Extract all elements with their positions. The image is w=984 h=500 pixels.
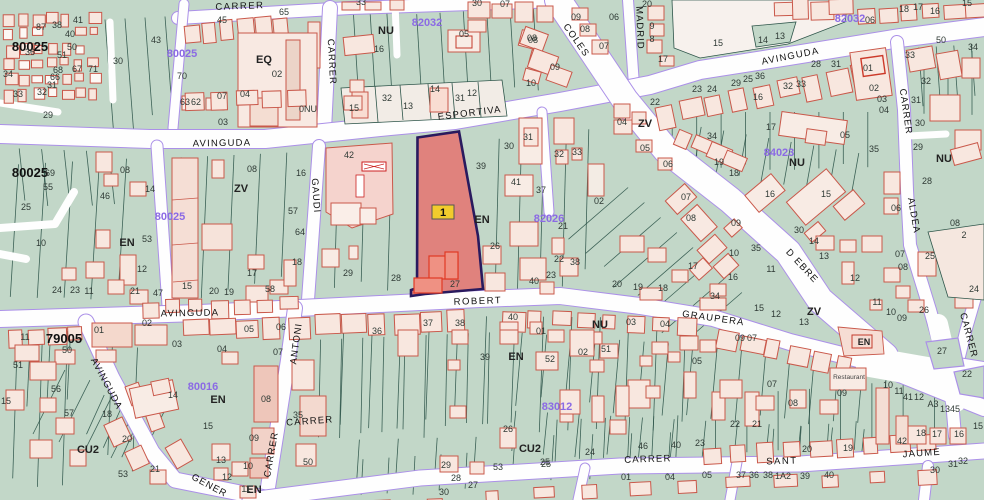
svg-text:1A2: 1A2 <box>775 471 791 481</box>
svg-text:32: 32 <box>554 149 564 159</box>
svg-text:27: 27 <box>450 279 460 289</box>
svg-text:80025: 80025 <box>167 48 198 60</box>
svg-text:19: 19 <box>224 287 234 297</box>
svg-text:21: 21 <box>558 221 568 231</box>
svg-text:62: 62 <box>191 97 201 107</box>
svg-text:AVINGUDA: AVINGUDA <box>193 137 252 149</box>
svg-text:15: 15 <box>754 303 764 313</box>
svg-text:05: 05 <box>459 29 469 39</box>
svg-text:41: 41 <box>511 177 521 187</box>
svg-text:20: 20 <box>122 434 132 444</box>
svg-text:67: 67 <box>72 64 82 74</box>
svg-text:31: 31 <box>948 459 958 469</box>
svg-text:69: 69 <box>45 168 55 178</box>
svg-text:1: 1 <box>440 207 446 219</box>
svg-text:31: 31 <box>455 93 465 103</box>
svg-text:04: 04 <box>879 105 889 115</box>
svg-text:53: 53 <box>118 469 128 479</box>
svg-text:21: 21 <box>150 464 160 474</box>
svg-text:52: 52 <box>545 354 555 364</box>
svg-text:39: 39 <box>480 352 490 362</box>
svg-text:03: 03 <box>877 94 887 104</box>
svg-text:10: 10 <box>243 461 253 471</box>
svg-text:02: 02 <box>578 347 588 357</box>
svg-text:07: 07 <box>895 249 905 259</box>
svg-text:15: 15 <box>182 281 192 291</box>
svg-text:63: 63 <box>180 97 190 107</box>
svg-text:17: 17 <box>247 268 257 278</box>
svg-text:08: 08 <box>788 398 798 408</box>
svg-text:33: 33 <box>796 79 806 89</box>
svg-text:ZV: ZV <box>638 118 653 130</box>
svg-text:07: 07 <box>599 41 609 51</box>
svg-text:17: 17 <box>913 2 923 12</box>
svg-text:11: 11 <box>84 286 93 296</box>
svg-text:23: 23 <box>695 438 705 448</box>
svg-text:30: 30 <box>930 465 940 475</box>
svg-text:05: 05 <box>244 324 254 334</box>
svg-text:NU: NU <box>789 157 805 169</box>
svg-text:06: 06 <box>609 12 619 22</box>
svg-text:24: 24 <box>707 84 717 94</box>
svg-text:51: 51 <box>13 360 23 370</box>
svg-text:46: 46 <box>100 191 110 201</box>
svg-text:20: 20 <box>642 0 652 9</box>
svg-text:79005: 79005 <box>46 331 82 346</box>
svg-text:40: 40 <box>824 470 834 480</box>
svg-text:35: 35 <box>869 144 879 154</box>
svg-text:57: 57 <box>64 408 74 418</box>
svg-text:EN: EN <box>474 214 489 226</box>
svg-text:32: 32 <box>921 76 931 86</box>
svg-text:14: 14 <box>168 390 178 400</box>
svg-text:15: 15 <box>962 0 972 8</box>
svg-text:EN: EN <box>508 351 523 363</box>
svg-text:06: 06 <box>276 322 286 332</box>
svg-text:17: 17 <box>688 261 698 271</box>
svg-text:08: 08 <box>247 164 257 174</box>
svg-text:29: 29 <box>343 268 353 278</box>
svg-text:36: 36 <box>755 71 765 81</box>
svg-text:20: 20 <box>802 444 812 454</box>
svg-text:25: 25 <box>540 457 550 467</box>
svg-text:51: 51 <box>57 50 67 60</box>
svg-text:18: 18 <box>729 168 739 178</box>
svg-text:11: 11 <box>872 297 881 307</box>
svg-text:18: 18 <box>292 257 302 267</box>
svg-text:31: 31 <box>47 80 57 90</box>
svg-text:05: 05 <box>692 356 702 366</box>
svg-text:06: 06 <box>891 203 901 213</box>
svg-text:87: 87 <box>36 22 46 32</box>
svg-text:ZV: ZV <box>234 183 249 195</box>
svg-text:58: 58 <box>265 284 275 294</box>
svg-text:12: 12 <box>850 273 860 283</box>
svg-text:65: 65 <box>279 7 289 17</box>
svg-text:09: 09 <box>735 333 745 343</box>
svg-text:CARRER: CARRER <box>624 453 672 466</box>
svg-text:ZV: ZV <box>807 306 822 318</box>
svg-text:EN: EN <box>858 337 871 347</box>
svg-text:02: 02 <box>594 196 604 206</box>
svg-text:29: 29 <box>913 142 923 152</box>
svg-text:10: 10 <box>526 78 536 88</box>
svg-text:31: 31 <box>911 95 921 105</box>
svg-text:01: 01 <box>863 63 873 73</box>
svg-text:30: 30 <box>439 487 449 497</box>
svg-text:12: 12 <box>914 392 924 402</box>
svg-text:56: 56 <box>51 384 61 394</box>
svg-text:15: 15 <box>1 396 11 406</box>
svg-text:46: 46 <box>638 441 648 451</box>
svg-text:28: 28 <box>811 59 821 69</box>
svg-text:04: 04 <box>617 117 627 127</box>
svg-text:31: 31 <box>523 132 533 142</box>
svg-text:26: 26 <box>490 241 500 251</box>
svg-text:27: 27 <box>468 480 478 490</box>
svg-text:18: 18 <box>916 428 926 438</box>
svg-text:57: 57 <box>288 206 298 216</box>
svg-text:36: 36 <box>372 326 382 336</box>
svg-text:13: 13 <box>775 31 785 41</box>
svg-text:17: 17 <box>766 122 776 132</box>
svg-text:43: 43 <box>151 35 161 45</box>
svg-text:70: 70 <box>177 71 187 81</box>
svg-text:50: 50 <box>67 42 77 52</box>
svg-text:07: 07 <box>747 333 757 343</box>
svg-text:33: 33 <box>572 147 582 157</box>
svg-text:09: 09 <box>550 62 560 72</box>
svg-text:06: 06 <box>663 159 673 169</box>
svg-text:16: 16 <box>374 44 384 54</box>
svg-text:34: 34 <box>968 42 978 52</box>
svg-text:30: 30 <box>915 118 925 128</box>
svg-text:80025: 80025 <box>155 211 186 223</box>
svg-text:45: 45 <box>217 15 227 25</box>
svg-text:28: 28 <box>391 273 401 283</box>
svg-text:16: 16 <box>728 272 738 282</box>
svg-text:11: 11 <box>20 332 29 342</box>
svg-text:CARRER: CARRER <box>215 0 264 13</box>
svg-text:38: 38 <box>52 20 62 30</box>
svg-text:14: 14 <box>758 35 768 45</box>
svg-text:07: 07 <box>217 91 227 101</box>
svg-text:13: 13 <box>819 251 829 261</box>
svg-text:13: 13 <box>403 101 413 111</box>
svg-text:30: 30 <box>113 56 123 66</box>
svg-text:19: 19 <box>633 282 643 292</box>
svg-text:15: 15 <box>203 421 213 431</box>
svg-text:16: 16 <box>753 92 763 102</box>
svg-text:12: 12 <box>771 309 781 319</box>
svg-text:29: 29 <box>731 78 741 88</box>
svg-text:30: 30 <box>504 141 514 151</box>
svg-text:30: 30 <box>794 225 804 235</box>
svg-text:NU: NU <box>936 153 952 165</box>
svg-text:MADRID: MADRID <box>633 6 646 50</box>
svg-text:8: 8 <box>649 34 654 44</box>
svg-text:14: 14 <box>809 236 819 246</box>
svg-text:21: 21 <box>752 419 762 429</box>
svg-text:40: 40 <box>671 440 681 450</box>
svg-text:32: 32 <box>783 81 793 91</box>
svg-text:36: 36 <box>749 470 759 480</box>
svg-text:12: 12 <box>467 88 477 98</box>
svg-text:42: 42 <box>344 150 354 160</box>
svg-text:53: 53 <box>142 234 152 244</box>
svg-text:36: 36 <box>25 47 35 57</box>
svg-text:09: 09 <box>837 388 847 398</box>
svg-text:29: 29 <box>441 460 451 470</box>
svg-text:12: 12 <box>222 472 232 482</box>
svg-text:10: 10 <box>36 238 46 248</box>
svg-text:09: 09 <box>249 433 259 443</box>
svg-text:21: 21 <box>130 286 140 296</box>
svg-text:55: 55 <box>43 182 53 192</box>
svg-text:02: 02 <box>869 83 879 93</box>
svg-text:9: 9 <box>649 21 654 31</box>
svg-text:05: 05 <box>702 470 712 480</box>
svg-text:08: 08 <box>580 24 590 34</box>
svg-text:03: 03 <box>172 339 182 349</box>
svg-text:05: 05 <box>840 130 850 140</box>
svg-text:16: 16 <box>296 168 306 178</box>
svg-text:34: 34 <box>710 291 720 301</box>
svg-text:15: 15 <box>349 103 359 113</box>
svg-text:03: 03 <box>626 317 636 327</box>
svg-text:08: 08 <box>950 218 960 228</box>
svg-text:16: 16 <box>930 6 940 16</box>
svg-text:22: 22 <box>962 369 972 379</box>
svg-text:1345: 1345 <box>940 404 960 414</box>
svg-text:23: 23 <box>692 84 702 94</box>
svg-text:25: 25 <box>21 202 31 212</box>
svg-text:04: 04 <box>660 319 670 329</box>
svg-text:11: 11 <box>241 484 250 494</box>
svg-text:SANT: SANT <box>766 455 798 467</box>
svg-text:02: 02 <box>272 69 283 80</box>
svg-text:24: 24 <box>585 447 595 457</box>
svg-text:23: 23 <box>70 285 80 295</box>
svg-text:28: 28 <box>922 176 932 186</box>
svg-text:01: 01 <box>621 472 631 482</box>
svg-text:EN: EN <box>119 237 134 249</box>
svg-text:CU2: CU2 <box>519 443 541 455</box>
svg-text:08: 08 <box>528 35 538 45</box>
svg-text:22: 22 <box>650 97 660 107</box>
svg-text:35: 35 <box>751 243 761 253</box>
svg-text:16: 16 <box>954 429 964 439</box>
svg-text:2: 2 <box>961 230 966 240</box>
svg-text:24: 24 <box>969 284 979 294</box>
svg-text:33: 33 <box>356 0 366 7</box>
svg-text:20: 20 <box>209 286 219 296</box>
svg-text:01: 01 <box>94 325 104 335</box>
svg-text:50: 50 <box>303 457 313 467</box>
svg-text:07: 07 <box>767 379 777 389</box>
svg-text:14: 14 <box>430 84 440 94</box>
svg-text:39: 39 <box>800 471 810 481</box>
svg-text:25: 25 <box>925 251 935 261</box>
svg-text:18: 18 <box>899 4 909 14</box>
svg-text:08: 08 <box>261 394 271 404</box>
svg-text:37: 37 <box>423 318 433 328</box>
svg-text:50: 50 <box>936 35 946 45</box>
svg-text:18: 18 <box>658 283 668 293</box>
svg-text:71: 71 <box>88 64 98 74</box>
svg-text:08: 08 <box>686 213 696 223</box>
svg-text:NU: NU <box>378 25 394 37</box>
svg-text:38: 38 <box>763 470 773 480</box>
svg-text:22: 22 <box>730 419 740 429</box>
svg-text:64: 64 <box>295 227 305 237</box>
svg-text:Restaurant: Restaurant <box>833 374 865 381</box>
svg-text:09: 09 <box>731 218 741 228</box>
svg-text:15: 15 <box>821 189 831 199</box>
svg-text:17: 17 <box>658 54 668 64</box>
svg-text:38: 38 <box>570 257 580 267</box>
svg-text:32: 32 <box>958 456 968 466</box>
svg-text:39: 39 <box>476 161 486 171</box>
svg-text:09: 09 <box>571 12 581 22</box>
svg-text:08: 08 <box>120 165 130 175</box>
svg-text:12: 12 <box>137 264 147 274</box>
svg-text:80025: 80025 <box>12 165 48 180</box>
svg-text:22: 22 <box>554 254 564 264</box>
svg-text:03: 03 <box>218 117 228 127</box>
svg-text:51: 51 <box>601 344 611 354</box>
svg-text:80016: 80016 <box>188 381 219 393</box>
svg-text:41: 41 <box>73 15 83 25</box>
svg-text:15: 15 <box>973 421 983 431</box>
svg-text:33: 33 <box>905 50 915 60</box>
svg-text:11: 11 <box>766 264 775 274</box>
svg-text:ROBERT: ROBERT <box>454 295 503 308</box>
svg-text:34: 34 <box>3 69 13 79</box>
svg-text:29: 29 <box>43 110 53 120</box>
svg-text:04: 04 <box>217 344 227 354</box>
svg-text:19: 19 <box>714 157 724 167</box>
svg-text:19: 19 <box>843 443 853 453</box>
svg-text:20: 20 <box>612 279 622 289</box>
svg-text:15: 15 <box>713 38 723 48</box>
svg-text:24: 24 <box>52 285 62 295</box>
svg-text:07: 07 <box>681 192 691 202</box>
svg-text:14: 14 <box>145 184 155 194</box>
svg-text:10: 10 <box>886 307 896 317</box>
svg-text:13: 13 <box>799 317 809 327</box>
svg-text:A3: A3 <box>927 399 938 409</box>
svg-text:26: 26 <box>919 305 929 315</box>
svg-text:47: 47 <box>153 288 163 298</box>
svg-text:04: 04 <box>665 472 675 482</box>
svg-text:10: 10 <box>729 248 739 258</box>
svg-text:82032: 82032 <box>835 13 866 25</box>
svg-text:0NU: 0NU <box>299 104 317 114</box>
svg-text:17: 17 <box>932 429 942 439</box>
svg-text:09: 09 <box>897 313 907 323</box>
svg-text:NU: NU <box>592 319 608 331</box>
svg-text:37: 37 <box>536 185 546 195</box>
svg-text:04: 04 <box>240 89 250 99</box>
svg-text:02: 02 <box>142 318 152 328</box>
svg-text:32: 32 <box>382 93 392 103</box>
svg-text:07: 07 <box>273 347 283 357</box>
svg-text:42: 42 <box>897 436 907 446</box>
svg-text:07: 07 <box>500 0 510 9</box>
svg-text:01: 01 <box>536 326 546 336</box>
svg-text:EN: EN <box>210 394 225 406</box>
svg-text:27: 27 <box>937 346 947 356</box>
svg-text:25: 25 <box>743 74 753 84</box>
svg-text:33: 33 <box>13 89 23 99</box>
svg-text:35: 35 <box>293 410 303 420</box>
svg-text:40: 40 <box>65 29 75 39</box>
svg-text:32: 32 <box>37 87 47 97</box>
svg-text:CU2: CU2 <box>77 444 99 456</box>
svg-text:06: 06 <box>865 15 875 25</box>
svg-text:28: 28 <box>451 473 461 483</box>
svg-text:53: 53 <box>493 462 503 472</box>
svg-text:18: 18 <box>102 409 112 419</box>
svg-text:40: 40 <box>529 276 539 286</box>
svg-text:05: 05 <box>640 143 650 153</box>
svg-text:10: 10 <box>883 380 893 390</box>
svg-text:83012: 83012 <box>542 401 573 413</box>
svg-text:34: 34 <box>707 131 717 141</box>
svg-text:EQ: EQ <box>256 54 272 66</box>
svg-text:16: 16 <box>765 189 775 199</box>
svg-text:50: 50 <box>62 345 72 355</box>
svg-text:08: 08 <box>898 262 908 272</box>
svg-text:31: 31 <box>831 59 841 69</box>
svg-text:23: 23 <box>546 270 556 280</box>
svg-text:AVINGUDA: AVINGUDA <box>161 307 220 319</box>
svg-text:30: 30 <box>472 0 482 8</box>
svg-text:13: 13 <box>216 455 226 465</box>
svg-text:37: 37 <box>736 470 746 480</box>
svg-text:26: 26 <box>503 424 513 434</box>
svg-text:41: 41 <box>903 392 913 402</box>
svg-text:38: 38 <box>455 318 465 328</box>
svg-text:82032: 82032 <box>412 17 443 29</box>
svg-text:40: 40 <box>508 312 518 322</box>
